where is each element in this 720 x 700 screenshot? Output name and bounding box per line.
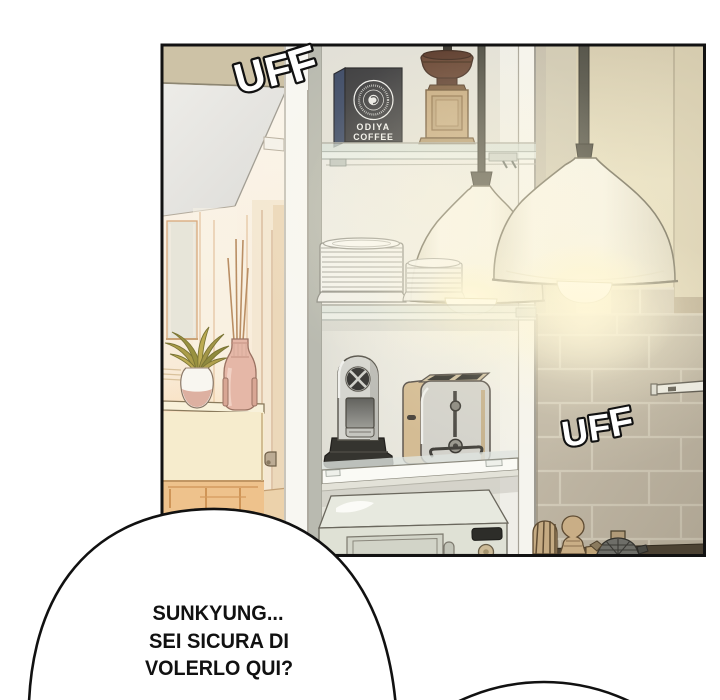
- svg-text:SEI SICURA DI: SEI SICURA DI: [149, 629, 289, 653]
- svg-text:VOLERLO QUI?: VOLERLO QUI?: [145, 656, 293, 680]
- svg-text:SUNKYUNG...: SUNKYUNG...: [153, 601, 284, 625]
